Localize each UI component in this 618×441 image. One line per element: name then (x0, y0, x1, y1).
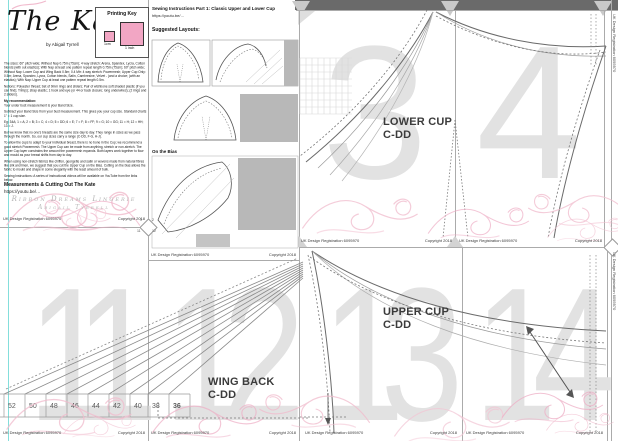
paragraph: Your under bust measurement is your Band… (4, 104, 147, 108)
footer-copyright: Copyright 2018 (430, 430, 457, 435)
paragraph: Subtract your Band Size from your bust m… (4, 110, 147, 118)
marker-page-12: 12 (152, 230, 156, 234)
page-footer: UK Design Registration 6095970 Copyright… (3, 216, 145, 221)
footer-copyright: Copyright 2018 (269, 252, 296, 257)
footer-registration: UK Design Registration 6095970 (3, 430, 61, 435)
flourish-fragment (10, 0, 50, 10)
marker-page-1: 1 (140, 219, 142, 223)
footer-copyright: Copyright 2018 (425, 238, 452, 243)
tiled-pattern-sheet: 3 4 11 12 13 14 The Kate by Abigail Tyrr… (0, 0, 618, 441)
page-footer: UK Design Registration 6095970 Copyright… (459, 238, 602, 243)
footer-registration: UK Design Registration 6095970 (151, 252, 209, 257)
scale-square-1inch (120, 22, 144, 46)
instructions-heading: Sewing Instructions Part 1: Classic Uppe… (152, 6, 294, 11)
footer-copyright: Copyright 2018 (118, 430, 145, 435)
footer-copyright: Copyright 2018 (269, 430, 296, 435)
paragraph: When using non-stretch fabrics like chif… (4, 160, 147, 172)
upper-cup-label: UPPER CUP C-DD (383, 306, 449, 331)
page-footer: UK Design Registration 6095970 Copyright… (3, 430, 145, 435)
page-footer: UK Design Registration 6095970 Copyright… (151, 430, 296, 435)
page-footer: UK Design Registration 6095970 Copyright… (151, 252, 296, 257)
footer-copyright: Copyright 2018 (575, 238, 602, 243)
piece-name: WING BACK (208, 376, 275, 389)
paragraph: My recommendation: (4, 99, 147, 103)
sliver-page-registration: UK Design Registration 6095970 (612, 252, 617, 310)
piece-name: UPPER CUP (383, 306, 449, 319)
printing-key-heading: Printing Key (96, 11, 148, 17)
paragraph: The sizes: 60" pitch wide; Without Nap 0… (4, 62, 147, 83)
layout-diagrams (150, 36, 298, 250)
wing-back-label: WING BACK C-DD (208, 376, 275, 401)
footer-copyright: Copyright 2018 (576, 430, 603, 435)
suggested-layouts-heading: Suggested Layouts: (152, 27, 200, 33)
scale-label-1inch: 1 inch (125, 46, 134, 50)
piece-name: LOWER CUP (383, 116, 452, 129)
piece-size-range: C-DD (208, 389, 275, 402)
paragraph: But we know that no one's breasts are th… (4, 131, 147, 139)
piece-size-range: C-DD (383, 129, 452, 142)
page-footer: UK Design Registration 6095970 Copyright… (466, 430, 603, 435)
page-footer: UK Design Registration 6095970 Copyright… (305, 430, 457, 435)
footer-registration: UK Design Registration 6095970 (301, 238, 359, 243)
paragraph: To allow the cups to adapt to your indiv… (4, 141, 147, 158)
footer-registration: UK Design Registration 6095970 (151, 430, 209, 435)
footer-registration: UK Design Registration 6095970 (466, 430, 524, 435)
brand-script-line2: Abigail Tyrrell (8, 204, 140, 211)
footer-registration: UK Design Registration 6095970 (459, 238, 517, 243)
lower-cup-label: LOWER CUP C-DD (383, 116, 452, 141)
marker-page-11: 11 (137, 230, 141, 234)
page-footer: UK Design Registration 6095970 Copyright… (301, 238, 452, 243)
intro-text-block: The sizes: 60" pitch wide; Without Nap 0… (4, 62, 147, 185)
scale-label-1cm: 1cm (104, 42, 111, 46)
sliver-page-registration: UK Design Registration 6095970 (612, 14, 617, 72)
footer-registration: UK Design Registration 6095970 (3, 216, 61, 221)
brand-script-line1: Ribbon Dreams Lingerie (8, 195, 140, 203)
paragraph: Eg: 34A; 1 = A; 2 = B; 3 = C; 4 = D; 5 =… (4, 120, 147, 128)
scale-square-1cm (104, 31, 115, 42)
footer-registration: UK Design Registration 6095970 (305, 430, 363, 435)
paragraph: Notions: Polyester thread; Set of 9mm ri… (4, 85, 147, 97)
marker-page-2: 2 (152, 219, 154, 223)
instructions-youtube-link[interactable]: https://youtu.be/… (152, 13, 184, 18)
byline: by Abigail Tyrrell (46, 42, 79, 47)
printing-key-box: Printing Key 1cm 1 inch (95, 7, 149, 58)
piece-size-range: C-DD (383, 319, 449, 332)
